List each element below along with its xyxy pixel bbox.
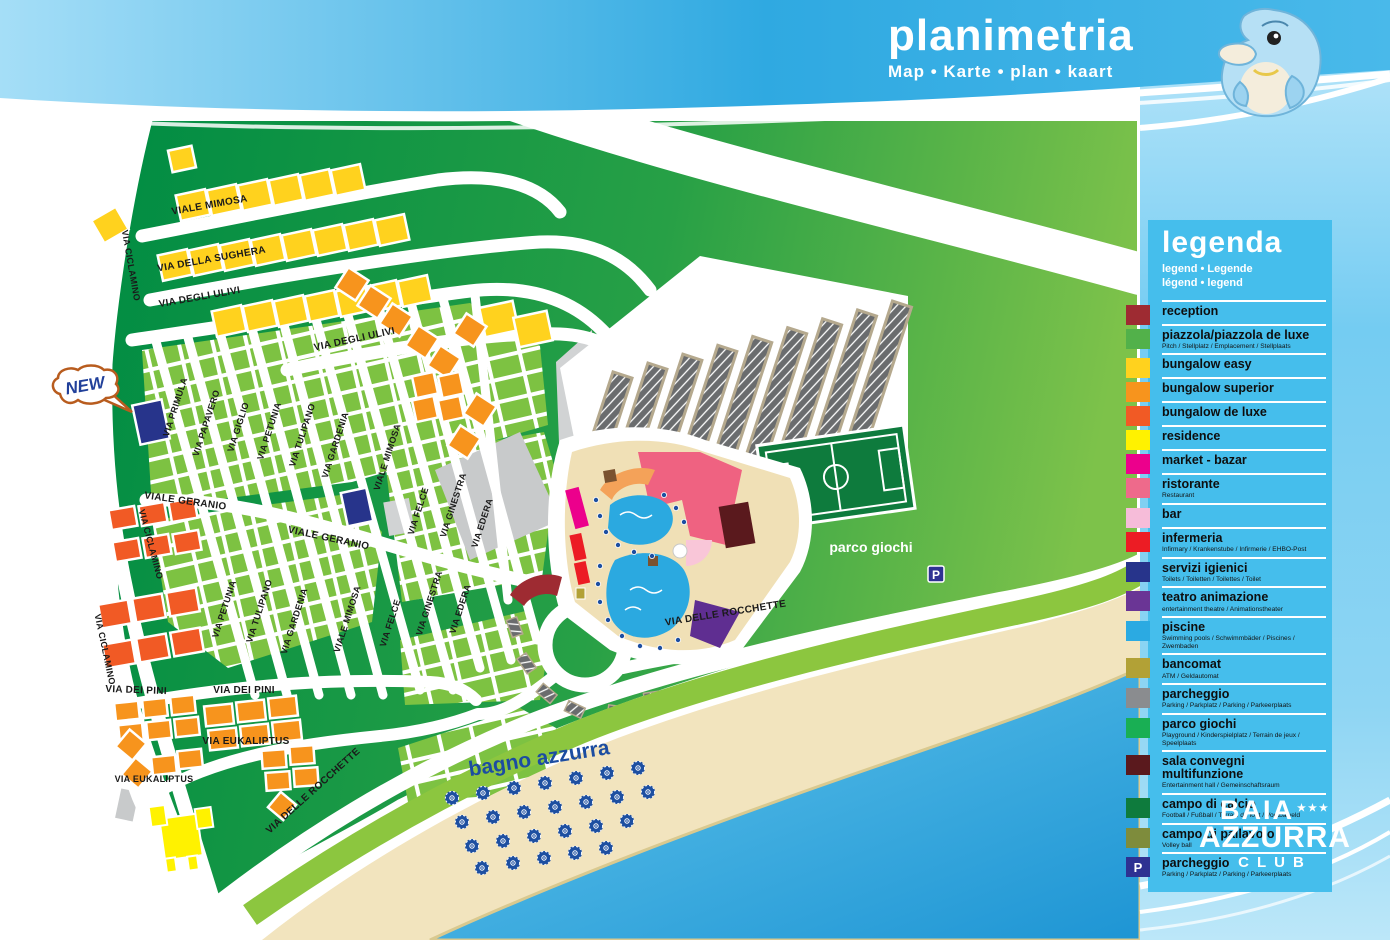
legend-item-bungalow-deluxe: bungalow de luxe (1162, 401, 1326, 425)
legend-item-bungalow-easy: bungalow easy (1162, 353, 1326, 377)
residence-swatch (1126, 430, 1150, 450)
bar-swatch (1126, 508, 1150, 528)
parcheggio-swatch (1126, 688, 1150, 708)
campo-pallavolo-swatch (1126, 828, 1150, 848)
legend-item-bungalow-superior: bungalow superior (1162, 377, 1326, 401)
legend-item-piscine: piscine Swimming pools / Schwimmbäder / … (1162, 616, 1326, 653)
legend-item-ristorante: ristorante Restaurant (1162, 473, 1326, 503)
ristorante-swatch (1126, 478, 1150, 498)
piazzola-swatch (1126, 329, 1150, 349)
legend-item-reception: reception (1162, 300, 1326, 324)
legend-item-infermeria: infermeria Infirmary / Krankenstube / In… (1162, 527, 1326, 557)
bungalow-superior-swatch (1126, 382, 1150, 402)
legend-item-servizi: servizi igienici Toilets / Toiletten / T… (1162, 557, 1326, 587)
street-label: VIA DEI PINI (213, 685, 275, 696)
legend-item-residence: residence (1162, 425, 1326, 449)
street-label: VIA DEI PINI (105, 684, 167, 697)
parcheggio-p-swatch: P (1126, 857, 1150, 877)
street-label: VIA EUKALIPTUS (115, 774, 194, 784)
legend-subtitle-2: légend • legend (1162, 276, 1326, 290)
legend-item-parco-giochi: parco giochi Playground / Kinderspielpla… (1162, 713, 1326, 750)
piscine-swatch (1126, 621, 1150, 641)
legend-item-piazzola: piazzola/piazzola de luxe Pitch / Stellp… (1162, 324, 1326, 354)
legend-subtitle-1: legend • Legende (1162, 262, 1326, 276)
legend-item-sala-convegni: sala convegni multifunzione Entertainmen… (1162, 750, 1326, 793)
legend-item-parcheggio: parcheggio Parking / Parkplatz / Parking… (1162, 683, 1326, 713)
legend-item-bancomat: bancomat ATM / Geldautomat (1162, 653, 1326, 683)
baia-azzurra-logo: BAIA★★★ AZZURRA CLUB (1182, 798, 1368, 870)
infermeria-swatch (1126, 532, 1150, 552)
legend-item-teatro: teatro animazione entertainment theatre … (1162, 586, 1326, 616)
legend-title: legenda (1162, 228, 1326, 258)
page-subtitle: Map • Karte • plan • kaart (888, 62, 1134, 82)
legend-item-bar: bar (1162, 503, 1326, 527)
sala-convegni-swatch (1126, 755, 1150, 775)
legend-panel: legenda legend • Legende légend • legend… (1148, 220, 1332, 892)
header: planimetria Map • Karte • plan • kaart (888, 14, 1134, 82)
market-swatch (1126, 454, 1150, 474)
logo-line2: AZZURRA (1182, 824, 1368, 853)
street-label: VIA EUKALIPTUS (202, 736, 289, 747)
parco-giochi-swatch (1126, 718, 1150, 738)
logo-stars: ★★★ (1297, 803, 1330, 814)
p-icon: P (1134, 860, 1143, 875)
servizi-swatch (1126, 562, 1150, 582)
parco-giochi-label: parco giochi (829, 539, 912, 555)
page-title: planimetria (888, 14, 1134, 58)
legend-item-market: market - bazar (1162, 449, 1326, 473)
svg-text:P: P (932, 568, 940, 582)
planimetria-poster: P NEW VIALE MIMOSA VIA DELLA SUGHERA VIA… (0, 0, 1390, 940)
reception-swatch (1126, 305, 1150, 325)
logo-line3: CLUB (1182, 856, 1368, 870)
campo-calcio-swatch (1126, 798, 1150, 818)
teatro-swatch (1126, 591, 1150, 611)
bungalow-easy-swatch (1126, 358, 1150, 378)
parking-icon: P (928, 566, 944, 582)
bancomat-swatch (1126, 658, 1150, 678)
bancomat (576, 588, 585, 599)
bungalow-deluxe-swatch (1126, 406, 1150, 426)
